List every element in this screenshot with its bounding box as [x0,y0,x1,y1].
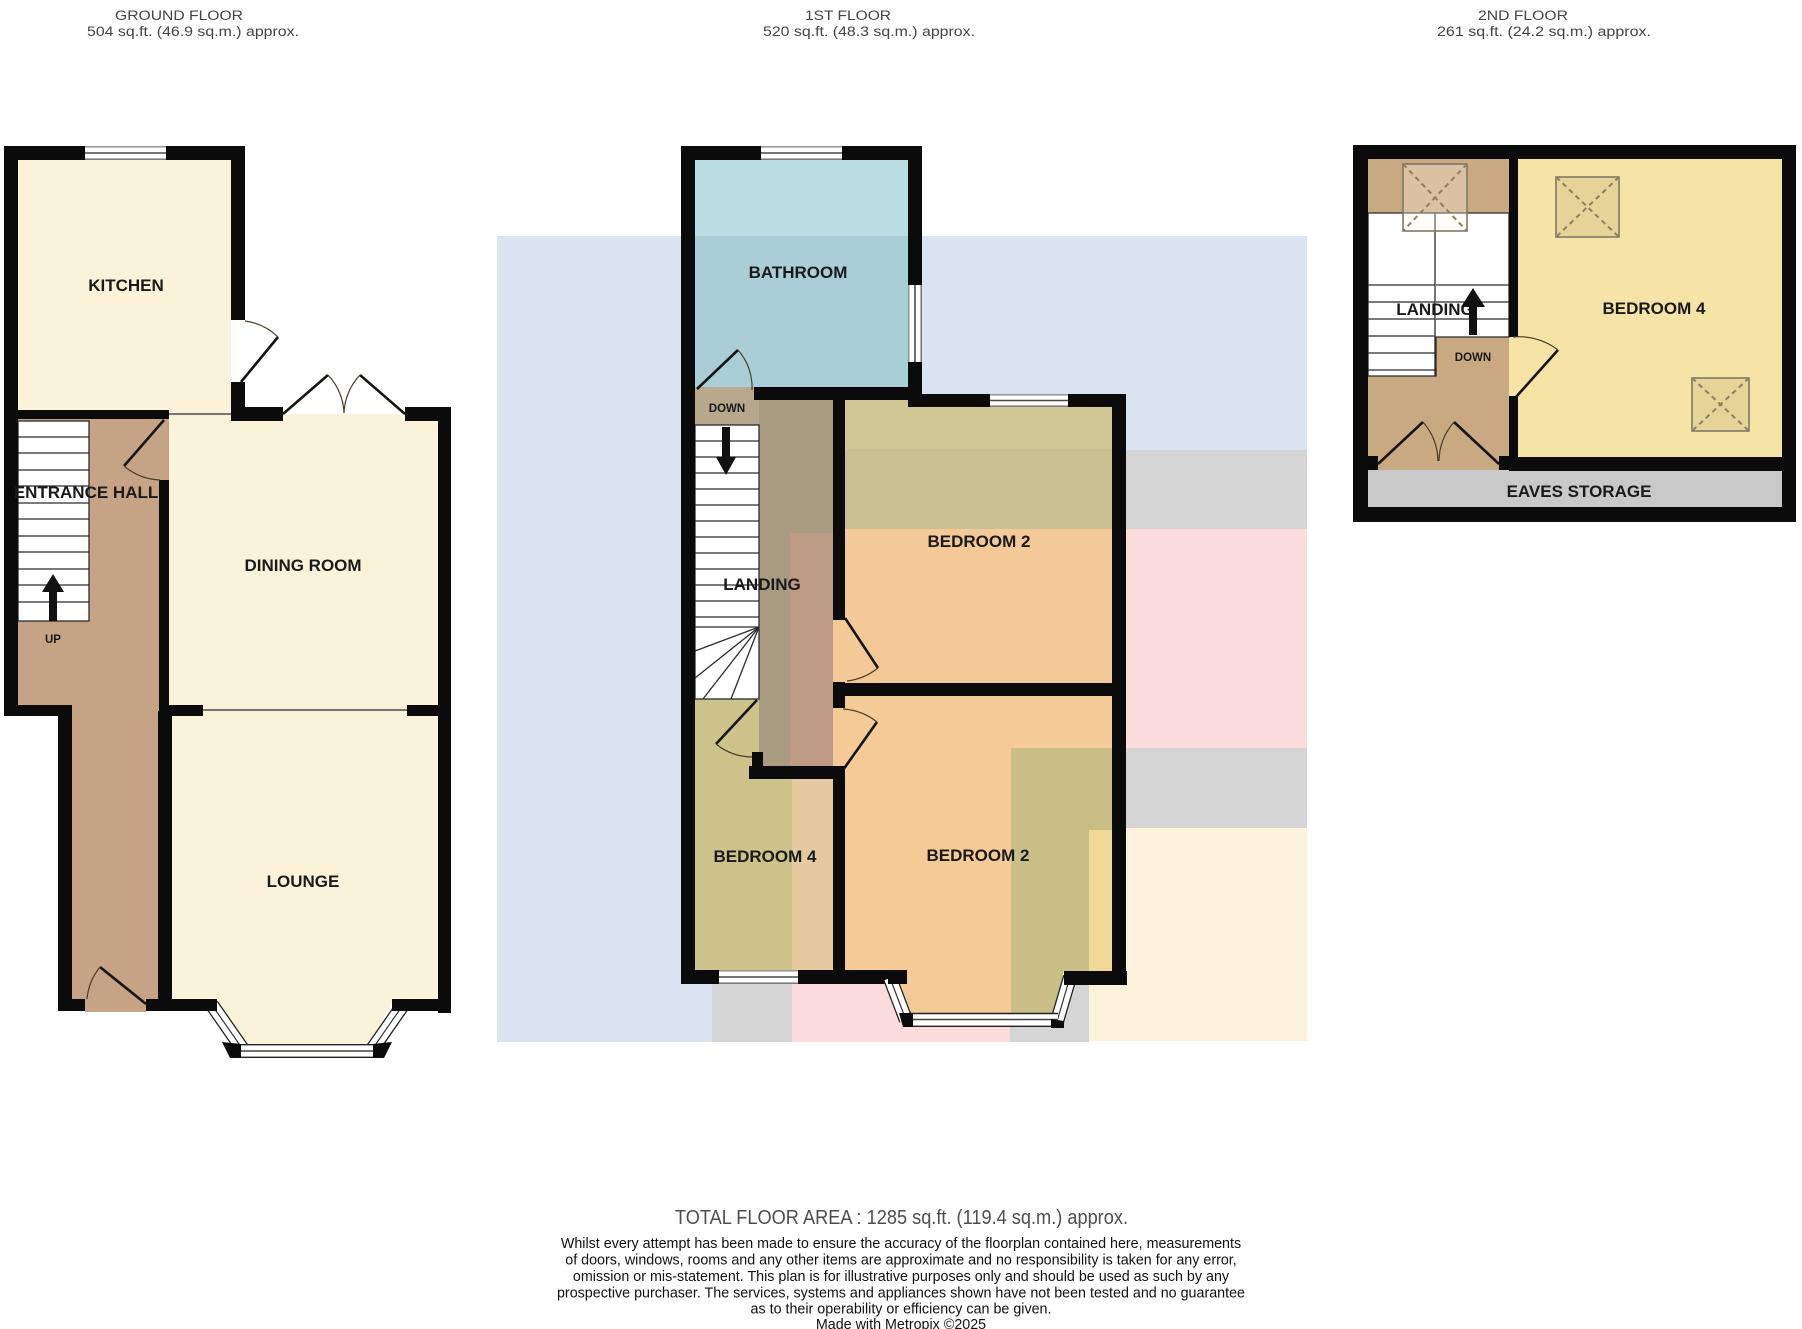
svg-text:DOWN: DOWN [709,403,745,415]
svg-text:BEDROOM 2: BEDROOM 2 [928,532,1031,551]
svg-text:Made with Metropix ©2025: Made with Metropix ©2025 [816,1317,986,1329]
svg-text:ENTRANCE HALL: ENTRANCE HALL [14,483,159,502]
svg-text:as to their operability or eff: as to their operability or efficiency ca… [751,1302,1052,1318]
svg-text:504 sq.ft. (46.9 sq.m.) approx: 504 sq.ft. (46.9 sq.m.) approx. [87,24,299,39]
svg-text:BEDROOM 4: BEDROOM 4 [714,847,818,866]
svg-text:BEDROOM 2: BEDROOM 2 [927,846,1030,865]
svg-text:LANDING: LANDING [1396,300,1473,319]
svg-text:1ST FLOOR: 1ST FLOOR [805,8,891,23]
svg-text:EAVES STORAGE: EAVES STORAGE [1507,482,1652,501]
svg-text:2ND FLOOR: 2ND FLOOR [1478,8,1568,23]
svg-text:BATHROOM: BATHROOM [749,263,848,282]
svg-text:DINING ROOM: DINING ROOM [244,556,361,575]
svg-text:omission or mis-statement. Thi: omission or mis-statement. This plan is … [573,1269,1230,1285]
svg-text:TOTAL FLOOR AREA : 1285 sq.ft.: TOTAL FLOOR AREA : 1285 sq.ft. (119.4 sq… [675,1206,1128,1229]
svg-text:LOUNGE: LOUNGE [267,872,340,891]
svg-text:520 sq.ft. (48.3 sq.m.) approx: 520 sq.ft. (48.3 sq.m.) approx. [763,24,975,39]
svg-text:LANDING: LANDING [723,575,800,594]
svg-text:UP: UP [45,634,61,646]
svg-text:GROUND FLOOR: GROUND FLOOR [115,8,243,23]
svg-text:of doors, windows, rooms and a: of doors, windows, rooms and any other i… [565,1253,1237,1269]
svg-text:KITCHEN: KITCHEN [88,276,164,295]
svg-text:BEDROOM 4: BEDROOM 4 [1603,299,1707,318]
svg-text:Whilst every attempt has been: Whilst every attempt has been made to en… [561,1236,1241,1252]
svg-text:DOWN: DOWN [1455,352,1491,364]
svg-text:261 sq.ft. (24.2 sq.m.) approx: 261 sq.ft. (24.2 sq.m.) approx. [1437,24,1651,39]
svg-text:prospective purchaser. The ser: prospective purchaser. The services, sys… [557,1286,1245,1302]
